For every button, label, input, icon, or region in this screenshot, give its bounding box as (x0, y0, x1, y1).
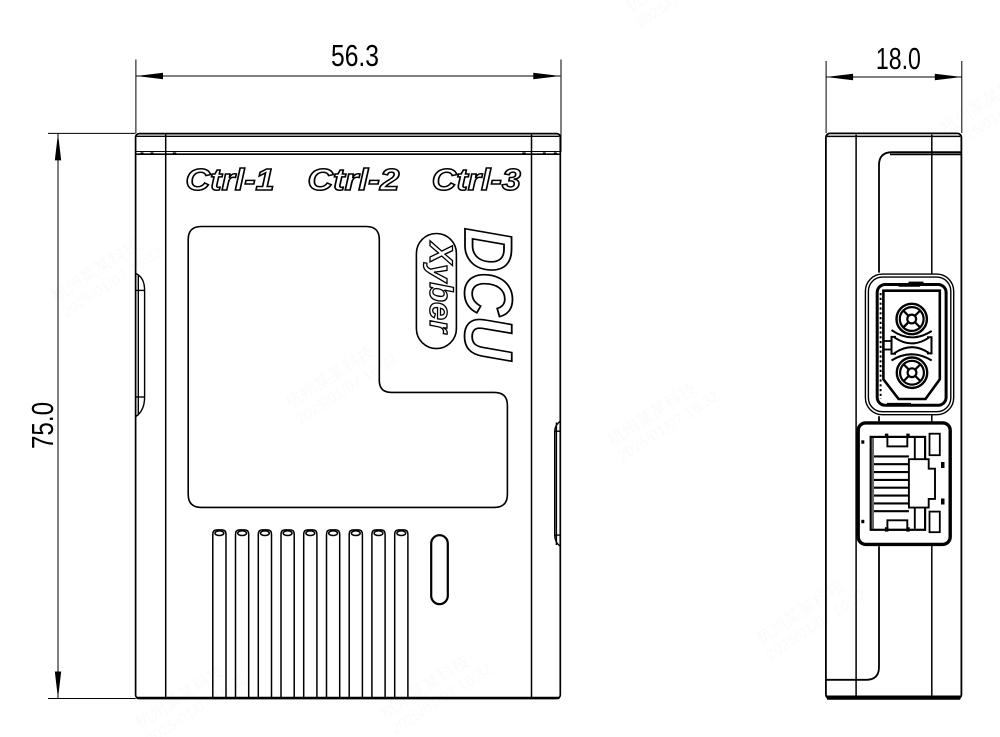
svg-text:Ctrl-2: Ctrl-2 (308, 163, 400, 197)
svg-text:Ctrl-1: Ctrl-1 (186, 163, 275, 197)
svg-text:56.3: 56.3 (331, 38, 379, 73)
svg-text:18.0: 18.0 (876, 41, 921, 76)
svg-text:DCU: DCU (450, 228, 526, 362)
svg-text:Ctrl-3: Ctrl-3 (432, 163, 521, 197)
svg-text:Xyber: Xyber (423, 240, 459, 334)
svg-text:75.0: 75.0 (25, 402, 60, 449)
